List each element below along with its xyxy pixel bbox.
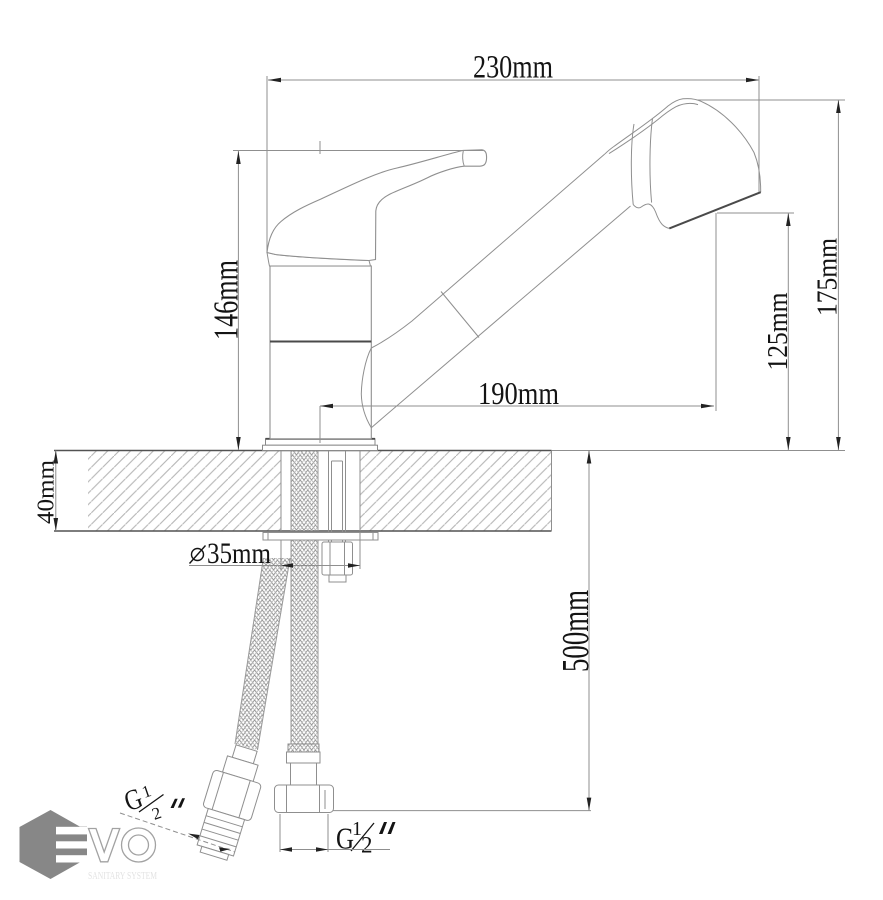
- svg-text:40mm: 40mm: [34, 460, 60, 524]
- svg-text:SANITARY SYSTEM: SANITARY SYSTEM: [88, 870, 157, 882]
- svg-text:500mm: 500mm: [555, 590, 597, 672]
- svg-text:35mm: 35mm: [207, 537, 271, 570]
- svg-text:190mm: 190mm: [478, 375, 559, 411]
- svg-text:125mm: 125mm: [763, 292, 794, 370]
- svg-text:230mm: 230mm: [473, 50, 553, 86]
- svg-text:146mm: 146mm: [207, 260, 246, 340]
- svg-text:175mm: 175mm: [813, 238, 844, 316]
